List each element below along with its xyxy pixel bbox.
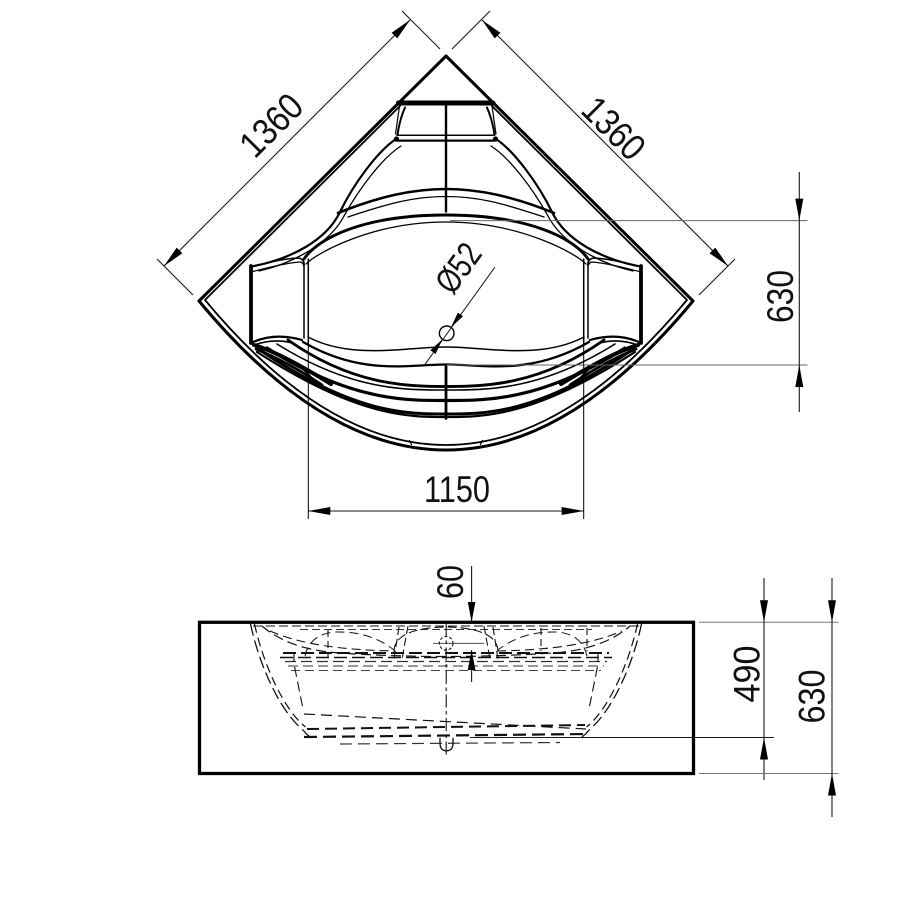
svg-text:1150: 1150 [424,469,490,510]
svg-text:490: 490 [727,646,768,703]
svg-text:60: 60 [430,565,471,599]
svg-text:630: 630 [760,270,801,323]
svg-text:630: 630 [792,670,833,724]
